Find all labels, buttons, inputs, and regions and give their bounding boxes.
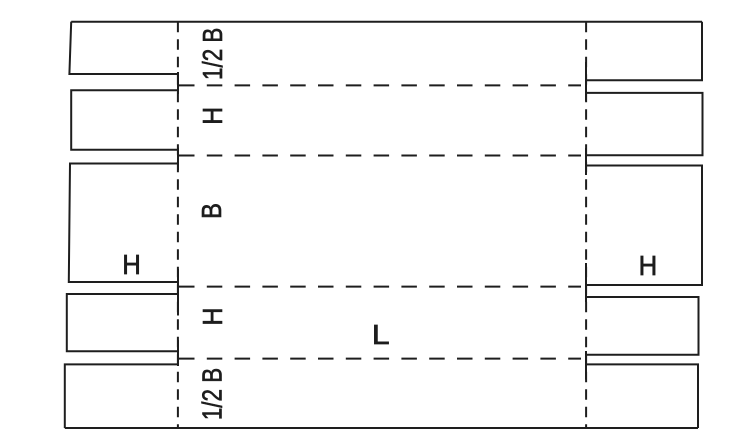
svg-text:B: B [195,203,227,219]
svg-text:H: H [639,250,658,281]
svg-text:1/2 B: 1/2 B [197,368,228,420]
svg-text:H: H [122,249,141,280]
svg-text:1/2 B: 1/2 B [198,28,229,80]
svg-text:L: L [372,320,390,351]
svg-text:H: H [197,307,229,325]
svg-text:H: H [197,107,229,125]
